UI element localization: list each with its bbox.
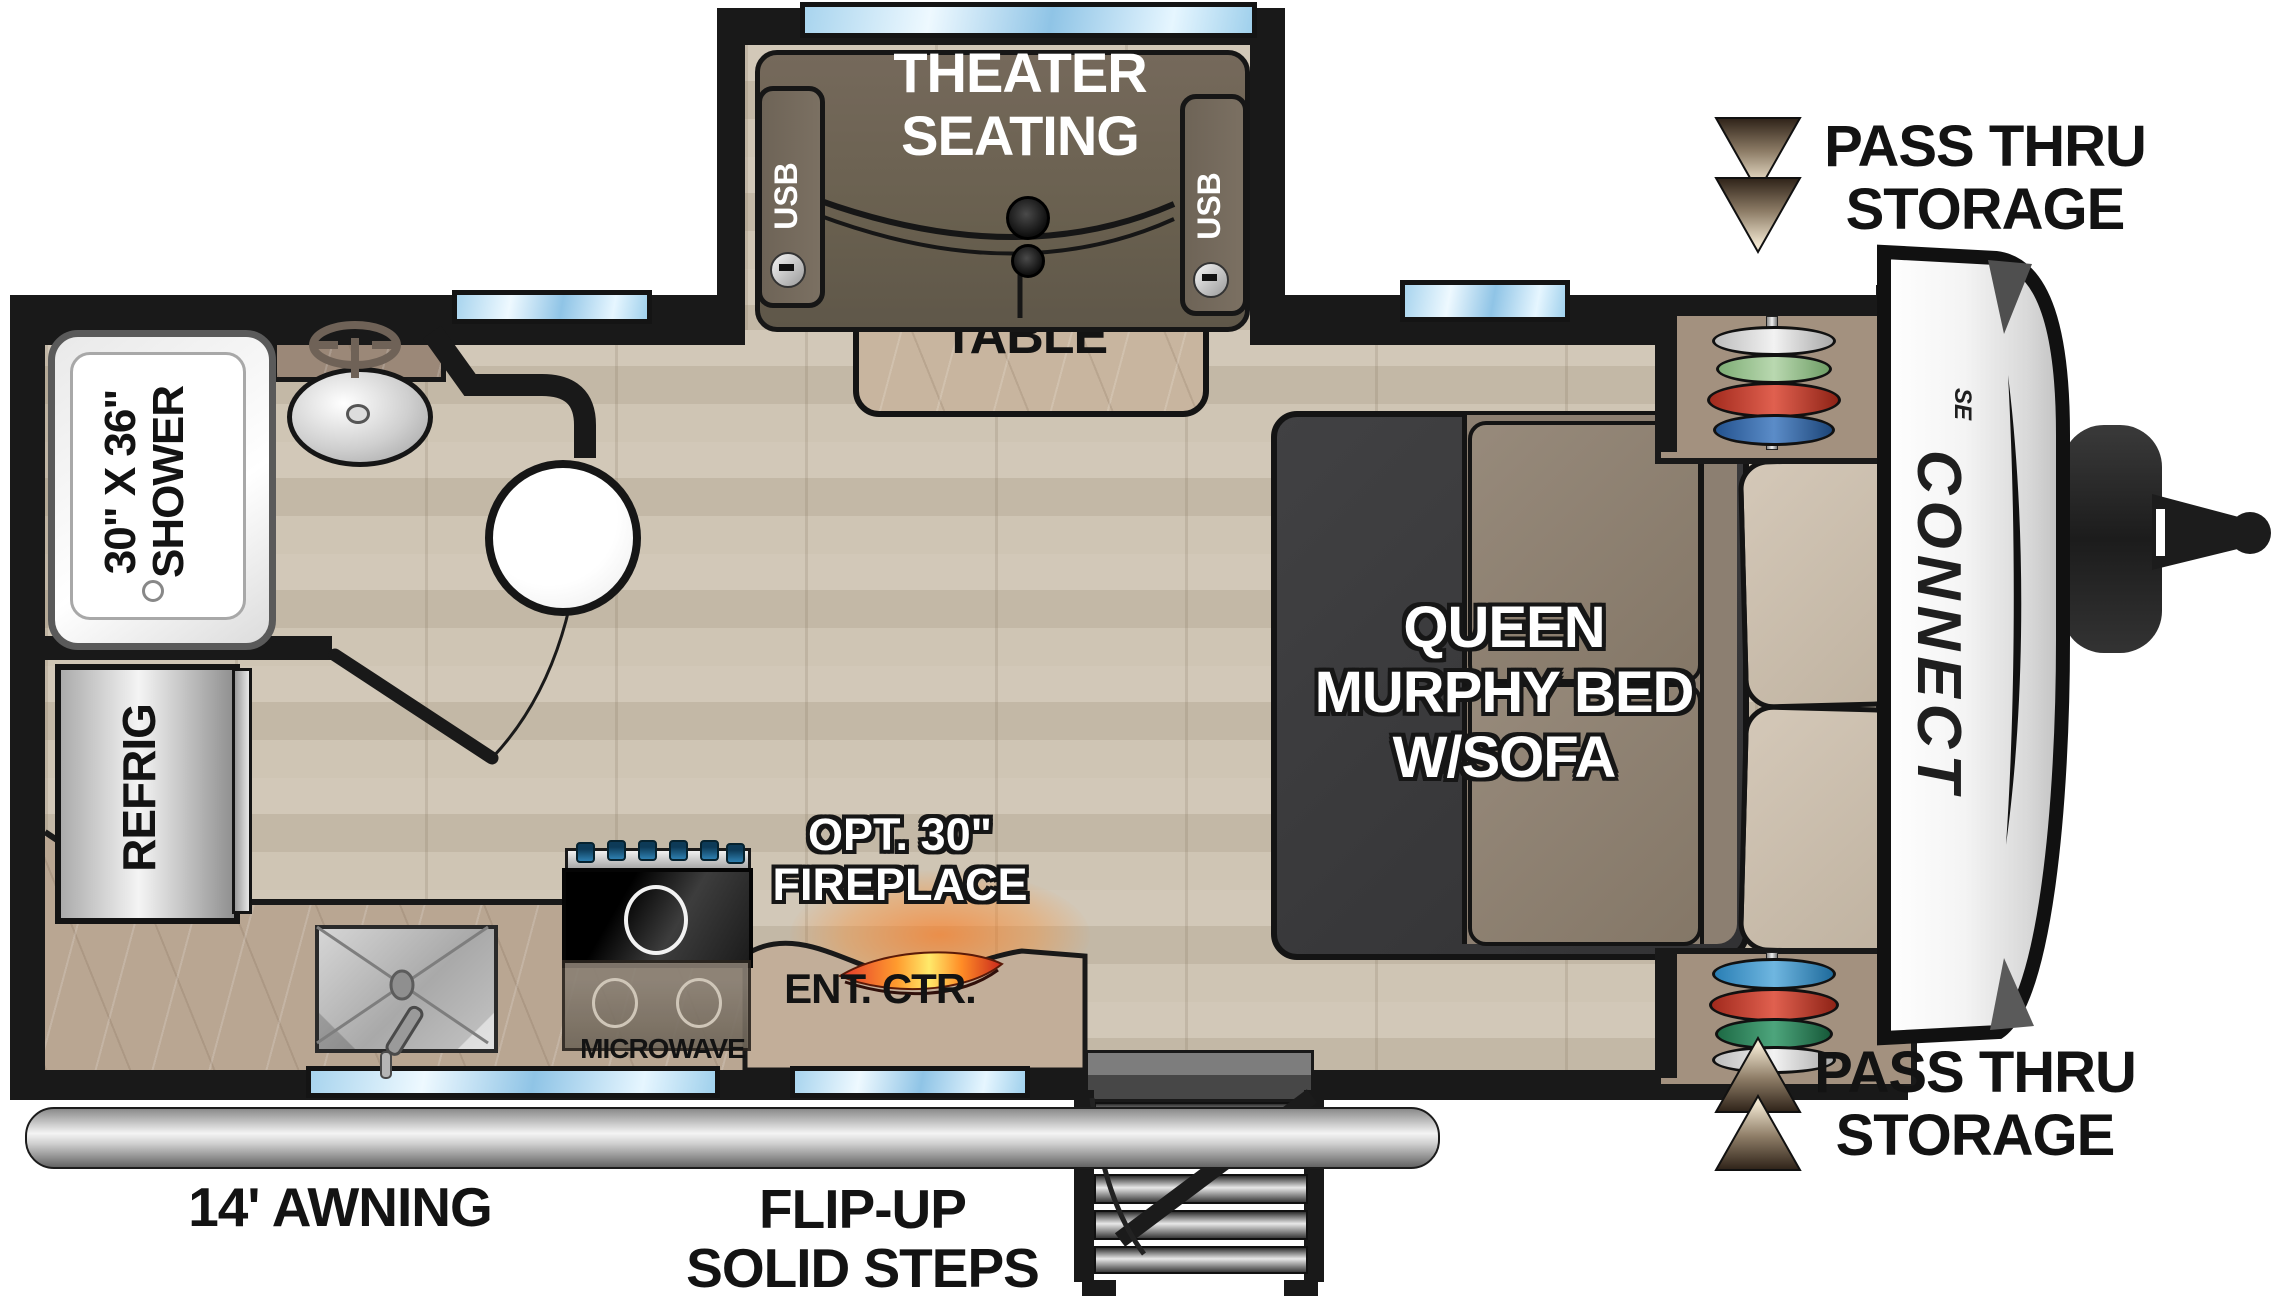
hanging-clothes-icon: [1707, 382, 1841, 418]
range-burner-icon: [676, 978, 722, 1028]
stove-knob-icon: [638, 840, 657, 861]
cupholder-icon: [1006, 196, 1050, 240]
hanging-clothes-icon: [1713, 414, 1835, 446]
awning-bar: [25, 1107, 1440, 1169]
hanging-clothes-icon: [1709, 988, 1839, 1022]
slideout-wall-left: [717, 8, 745, 345]
shower-label: 30" X 36" SHOWER: [97, 352, 207, 612]
window-bedroom-top: [1400, 280, 1570, 322]
cap-swoosh-decal: [2006, 375, 2021, 845]
hanging-clothes-icon: [1712, 958, 1836, 990]
murphy-bed-label: QUEEN MURPHY BED W/SOFA: [1254, 596, 1754, 791]
wardrobe-bottom-side: [1655, 948, 1677, 1078]
steps-label: FLIP-UP SOLID STEPS: [640, 1180, 1085, 1299]
bed-pillow: [1738, 456, 1904, 710]
hitch-tongue-icon: [2152, 494, 2250, 570]
stove-burner-icon: [624, 885, 688, 955]
cupholder-icon: [1011, 244, 1045, 278]
pass-thru-label-bottom: PASS THRU STORAGE: [1780, 1042, 2170, 1167]
window-bathroom-top: [452, 290, 652, 324]
ent-ctr-label: ENT. CTR.: [745, 966, 1015, 1011]
brand-logo: CONNECT: [1902, 414, 1974, 834]
stove-knob-icon: [726, 843, 745, 864]
entry-door: [1085, 1050, 1314, 1102]
usb-label-right: USB: [1192, 146, 1226, 266]
cap-decal-top: [1988, 260, 2032, 334]
step-tread: [1094, 1210, 1308, 1240]
window-entry: [790, 1066, 1030, 1098]
window-slideout: [800, 2, 1257, 38]
pass-thru-label-top: PASS THRU STORAGE: [1790, 116, 2180, 241]
cap-decal-bottom: [1990, 958, 2034, 1030]
usb-port-slot: [779, 264, 794, 271]
wardrobe-top-side: [1655, 310, 1677, 452]
microwave-label: MICROWAVE: [540, 1034, 785, 1064]
steps-foot: [1082, 1280, 1116, 1296]
usb-label-left: USB: [769, 136, 803, 256]
brand-trim-label: SE: [1948, 364, 1976, 444]
pass-thru-arrow-down-icon: [1716, 118, 1800, 252]
stove-knob-icon: [607, 840, 626, 861]
refrigerator-door: [232, 668, 252, 914]
hanging-clothes-icon: [1712, 326, 1836, 356]
step-tread: [1094, 1246, 1308, 1274]
stove-knob-icon: [669, 840, 688, 861]
kitchen-sink: [315, 925, 498, 1053]
toilet: [485, 460, 641, 616]
bathroom-sink-drain-icon: [346, 404, 370, 424]
shower-drain-icon: [142, 580, 164, 602]
step-tread: [1094, 1174, 1308, 1204]
window-kitchen: [306, 1066, 720, 1098]
theater-seating-label: THEATER SEATING: [845, 42, 1195, 167]
awning-label: 14' AWNING: [140, 1178, 540, 1237]
steps-foot: [1284, 1280, 1318, 1296]
stove-knob-icon: [576, 842, 595, 863]
hitch-assembly: [2040, 425, 2271, 653]
hitch-coupler-icon: [2229, 512, 2271, 554]
slideout-wall-right: [1250, 8, 1285, 345]
fireplace-label: OPT. 30" FIREPLACE: [770, 810, 1030, 911]
refrig-label: REFRIG: [115, 668, 165, 908]
usb-port-slot: [1202, 274, 1217, 281]
range-burner-icon: [592, 978, 638, 1028]
stove-knob-icon: [700, 840, 719, 861]
bed-pillow: [1738, 704, 1904, 956]
propane-cover-icon: [2062, 425, 2162, 653]
hitch-jack-notch: [2156, 509, 2165, 556]
floorplan-canvas: 30" X 36" SHOWER REFRIG TABLE: [0, 0, 2273, 1311]
hanging-clothes-icon: [1716, 354, 1832, 384]
wall-left: [10, 295, 45, 1100]
